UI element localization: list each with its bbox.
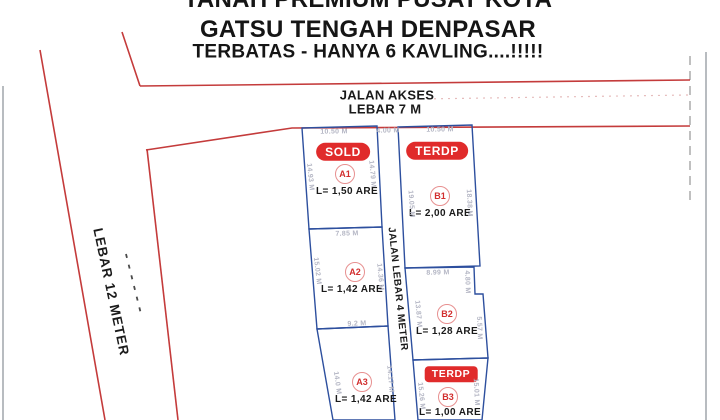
plot-area-b1: L= 2,00 ARE xyxy=(409,209,471,219)
site-plan-flyer: TANAH PREMIUM PUSAT KOTA GATSU TENGAH DE… xyxy=(0,0,720,420)
plot-id-circle-a2: A2 xyxy=(345,262,365,282)
dimension-b2-top: 8.99 M xyxy=(426,269,449,276)
dimension-a2-bottom: 9.2 M xyxy=(347,320,366,328)
dimension-b3-right: 15.01 M xyxy=(472,378,480,406)
dimension-frontage-a: 10.50 M xyxy=(320,128,348,135)
west-road-right-edge-lower xyxy=(147,149,178,420)
plot-area-b3: L= 1,00 ARE xyxy=(419,408,481,418)
access-road-label-line1: JALAN AKSES xyxy=(340,89,435,102)
plot-id-circle-b1: B1 xyxy=(430,186,450,206)
dimension-b2-notch: 4.80 M xyxy=(463,270,471,293)
headline-line2: GATSU TENGAH DENPASAR xyxy=(200,18,536,42)
plot-id-circle-b3: B3 xyxy=(438,387,458,407)
headline-line3: TERBATAS - HANYA 6 KAVLING....!!!!! xyxy=(192,43,543,62)
access-road-label-line2: LEBAR 7 M xyxy=(349,103,422,116)
west-road-center-dashes xyxy=(126,254,141,314)
plot-area-b2: L= 1,28 ARE xyxy=(416,327,478,337)
site-plan-drawing xyxy=(0,0,720,420)
status-badge-terdp-b1: TERDP xyxy=(406,142,468,160)
dimension-a2-top: 7.85 M xyxy=(335,230,358,238)
west-road-right-edge-upper xyxy=(122,32,140,86)
plot-area-a1: L= 1,50 ARE xyxy=(316,187,378,197)
plot-id-circle-a3: A3 xyxy=(352,372,372,392)
dimension-b1-right: 18.38 M xyxy=(465,189,473,217)
plot-area-a3: L= 1,42 ARE xyxy=(335,395,397,405)
dimension-b2-right: 5.57 M xyxy=(475,316,483,339)
plot-id-circle-a1: A1 xyxy=(335,164,355,184)
plot-id-circle-b2: B2 xyxy=(437,304,457,324)
status-badge-sold-a1: SOLD xyxy=(316,143,370,161)
access-road-top-edge xyxy=(140,80,690,86)
access-road-center-dots xyxy=(420,95,688,99)
status-badge-terdp-b3: TERDP xyxy=(425,366,478,382)
dimension-frontage-road: 4.00 M xyxy=(376,127,399,134)
dimension-frontage-b: 10.50 M xyxy=(426,126,454,133)
plot-area-a2: L= 1,42 ARE xyxy=(321,285,383,295)
headline-line1: TANAH PREMIUM PUSAT KOTA xyxy=(184,0,553,12)
